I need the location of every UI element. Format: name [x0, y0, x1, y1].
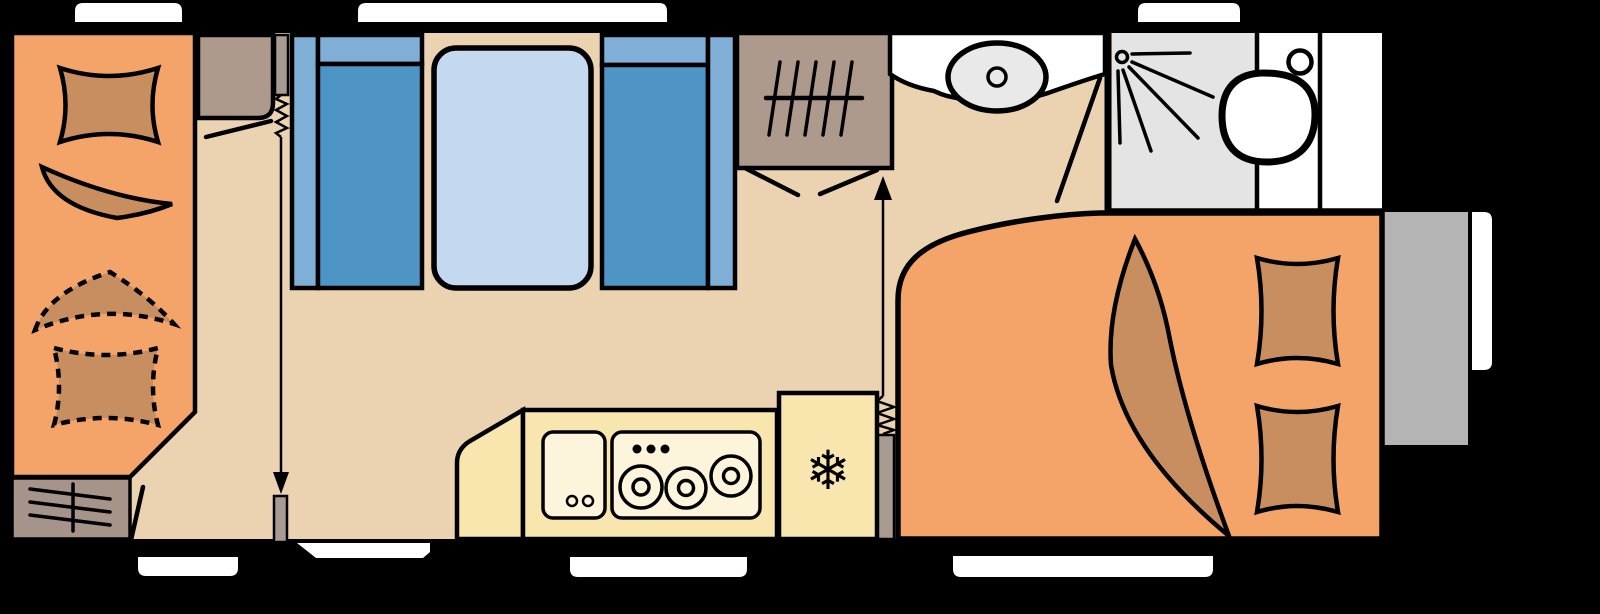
kitchen: ❄ — [457, 393, 877, 539]
snowflake-icon: ❄ — [805, 439, 850, 502]
floorplan-canvas: ❄ — [0, 0, 1600, 614]
basin-sink — [948, 43, 1046, 111]
hob-knobs-icon — [633, 445, 670, 454]
rear-pillow-bottom — [1257, 406, 1338, 512]
partition-pocket-bottom — [877, 435, 894, 539]
window-front-bottom — [138, 557, 238, 576]
entry-step — [297, 543, 430, 558]
window-rear-wall — [1472, 212, 1492, 370]
exterior-storage-box — [1383, 212, 1468, 445]
caravan-floorplan: ❄ — [0, 0, 1600, 614]
rear-pillow-top — [1257, 258, 1338, 364]
partition-pocket-top — [275, 35, 288, 95]
bench-right-seat — [602, 65, 708, 288]
bench-left-headrest — [318, 35, 422, 64]
rear-bedroom — [898, 213, 1382, 539]
entry-door-leaf — [274, 496, 287, 542]
wardrobe-body — [737, 33, 892, 168]
cabinet-body — [198, 35, 273, 118]
dinette-table — [434, 48, 591, 288]
toilet-bowl — [1222, 73, 1315, 162]
bench-left-backrest — [292, 35, 318, 288]
window-front-top — [75, 3, 182, 22]
bench-right-headrest — [602, 35, 708, 65]
toilet-flush-icon — [1289, 51, 1312, 74]
window-rear-bottom — [953, 556, 1213, 577]
window-dinette-top — [358, 3, 667, 22]
front-bedroom — [12, 33, 195, 477]
bench-right-backrest — [708, 35, 735, 288]
window-kitchen-bottom — [570, 557, 747, 577]
window-washroom-top — [1138, 3, 1240, 22]
front-pillow — [60, 68, 158, 142]
dinette — [292, 35, 735, 288]
bench-left-seat — [318, 64, 422, 288]
heater-cabinet — [12, 478, 143, 540]
front-pillow-extension-dashed — [54, 348, 158, 425]
